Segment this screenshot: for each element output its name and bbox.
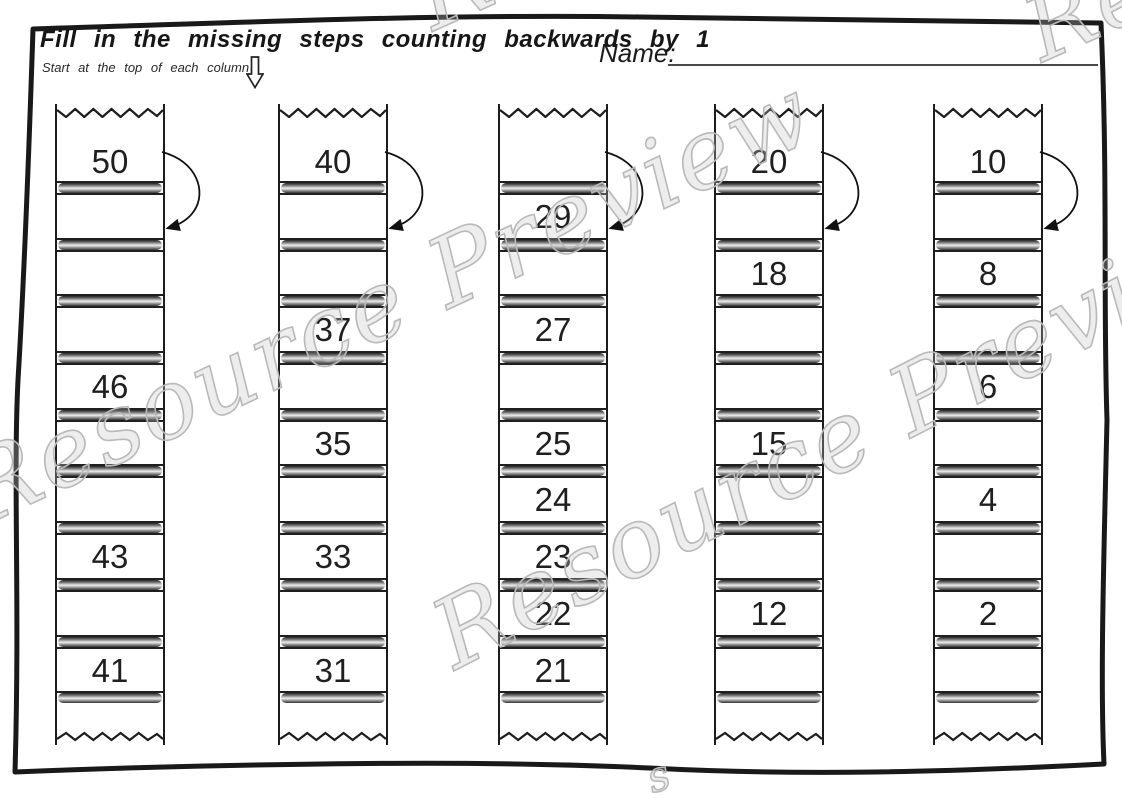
step-cell-blank — [716, 476, 822, 523]
ladder-rung — [936, 580, 1040, 590]
step-cell-filled: 21 — [500, 647, 606, 693]
step-cell-filled: 25 — [500, 420, 606, 466]
step-cell-filled: 46 — [57, 363, 163, 410]
ladder-rung — [58, 637, 162, 647]
watermark-bottom-fragment: s — [640, 749, 679, 803]
ladder-rung — [936, 637, 1040, 647]
step-cell-blank — [57, 250, 163, 296]
ladder-rung — [501, 183, 605, 193]
ladder-rung — [936, 353, 1040, 363]
step-cell-filled: 23 — [500, 533, 606, 580]
curved-arrow-icon — [602, 148, 658, 238]
torn-edge-top-icon — [280, 104, 386, 118]
name-line — [668, 36, 1098, 66]
ladder-rung — [281, 466, 385, 476]
step-cell-filled: 31 — [280, 647, 386, 693]
step-cell-filled: 33 — [280, 533, 386, 580]
ladder-column-1: 50464341 — [55, 104, 165, 745]
step-cell-filled: 10 — [935, 118, 1041, 183]
step-cell-filled: 2 — [935, 590, 1041, 637]
torn-edge-top-icon — [57, 104, 163, 118]
step-cell-blank — [280, 590, 386, 637]
step-cell-filled: 6 — [935, 363, 1041, 410]
ladder-rung — [281, 410, 385, 420]
ladder-rung — [501, 240, 605, 250]
step-cell-blank — [716, 306, 822, 353]
ladder-rung — [58, 580, 162, 590]
ladder-rung — [717, 693, 821, 703]
step-cell-blank — [57, 420, 163, 466]
curved-arrow-icon — [159, 148, 215, 238]
torn-edge-bottom-icon — [935, 731, 1041, 745]
step-cell-blank — [57, 306, 163, 353]
step-cell-blank — [57, 193, 163, 240]
ladder-rung — [501, 523, 605, 533]
torn-edge-top-icon — [500, 104, 606, 118]
ladder-rung — [501, 466, 605, 476]
ladder-rung — [501, 693, 605, 703]
ladder-rung — [717, 637, 821, 647]
ladder-rung — [58, 410, 162, 420]
ladder-rung — [936, 183, 1040, 193]
step-cell-blank — [716, 193, 822, 240]
step-cell-blank — [280, 193, 386, 240]
step-cell-filled: 22 — [500, 590, 606, 637]
ladder-rung — [717, 240, 821, 250]
ladder-rung — [281, 240, 385, 250]
ladder-rung — [936, 410, 1040, 420]
ladder-rung — [501, 296, 605, 306]
ladder-rung — [281, 637, 385, 647]
ladder-rung — [936, 693, 1040, 703]
step-cell-blank — [280, 476, 386, 523]
ladder-rung — [717, 183, 821, 193]
ladder-column-5: 108642 — [933, 104, 1043, 745]
name-label: Name: — [599, 38, 676, 69]
step-cell-filled: 24 — [500, 476, 606, 523]
ladder-column-2: 4037353331 — [278, 104, 388, 745]
ladder-column-4: 20181512 — [714, 104, 824, 745]
step-cell-filled: 18 — [716, 250, 822, 296]
step-cell-filled: 50 — [57, 118, 163, 183]
ladder-rung — [501, 580, 605, 590]
ladder-rung — [717, 523, 821, 533]
step-cell-blank — [57, 476, 163, 523]
ladder-rung — [281, 693, 385, 703]
ladder-rung — [501, 637, 605, 647]
torn-edge-top-icon — [935, 104, 1041, 118]
step-cell-blank — [935, 420, 1041, 466]
step-cell-blank — [280, 363, 386, 410]
step-cell-filled: 27 — [500, 306, 606, 353]
ladder-rung — [58, 240, 162, 250]
step-cell-blank — [280, 250, 386, 296]
hollow-down-arrow-icon — [246, 56, 264, 89]
ladder-rung — [281, 580, 385, 590]
ladder-rung — [717, 296, 821, 306]
step-cell-blank — [716, 533, 822, 580]
step-cell-blank — [935, 306, 1041, 353]
ladder-rung — [58, 523, 162, 533]
ladder-rung — [501, 353, 605, 363]
ladder-rung — [936, 296, 1040, 306]
ladder-rung — [717, 410, 821, 420]
torn-edge-bottom-icon — [57, 731, 163, 745]
ladder-rung — [717, 466, 821, 476]
step-cell-filled: 35 — [280, 420, 386, 466]
step-cell-blank — [935, 533, 1041, 580]
step-cell-filled: 8 — [935, 250, 1041, 296]
ladder-rung — [936, 466, 1040, 476]
step-cell-blank — [935, 647, 1041, 693]
step-cell-filled: 4 — [935, 476, 1041, 523]
step-cell-blank — [500, 118, 606, 183]
ladder-rung — [58, 296, 162, 306]
ladder-rung — [281, 296, 385, 306]
step-cell-blank — [57, 590, 163, 637]
step-cell-filled: 43 — [57, 533, 163, 580]
ladder-rung — [58, 693, 162, 703]
step-cell-blank — [500, 363, 606, 410]
ladder-rung — [281, 183, 385, 193]
step-cell-blank — [500, 250, 606, 296]
step-cell-blank — [935, 193, 1041, 240]
ladder-rung — [281, 523, 385, 533]
curved-arrow-icon — [1037, 148, 1093, 238]
torn-edge-bottom-icon — [716, 731, 822, 745]
ladder-rung — [58, 183, 162, 193]
step-cell-filled: 40 — [280, 118, 386, 183]
torn-edge-bottom-icon — [280, 731, 386, 745]
step-cell-blank — [716, 647, 822, 693]
ladder-rung — [58, 466, 162, 476]
step-cell-filled: 20 — [716, 118, 822, 183]
torn-edge-top-icon — [716, 104, 822, 118]
step-cell-filled: 15 — [716, 420, 822, 466]
ladder-rung — [936, 240, 1040, 250]
step-cell-blank — [716, 363, 822, 410]
ladder-column-3: 29272524232221 — [498, 104, 608, 745]
step-cell-filled: 29 — [500, 193, 606, 240]
ladder-rung — [501, 410, 605, 420]
ladder-rung — [717, 353, 821, 363]
ladder-rung — [281, 353, 385, 363]
ladder-rung — [717, 580, 821, 590]
worksheet-subtitle: Start at the top of each column — [42, 60, 249, 75]
curved-arrow-icon — [382, 148, 438, 238]
torn-edge-bottom-icon — [500, 731, 606, 745]
ladder-rung — [936, 523, 1040, 533]
step-cell-filled: 37 — [280, 306, 386, 353]
ladder-rung — [58, 353, 162, 363]
step-cell-filled: 12 — [716, 590, 822, 637]
step-cell-filled: 41 — [57, 647, 163, 693]
curved-arrow-icon — [818, 148, 874, 238]
